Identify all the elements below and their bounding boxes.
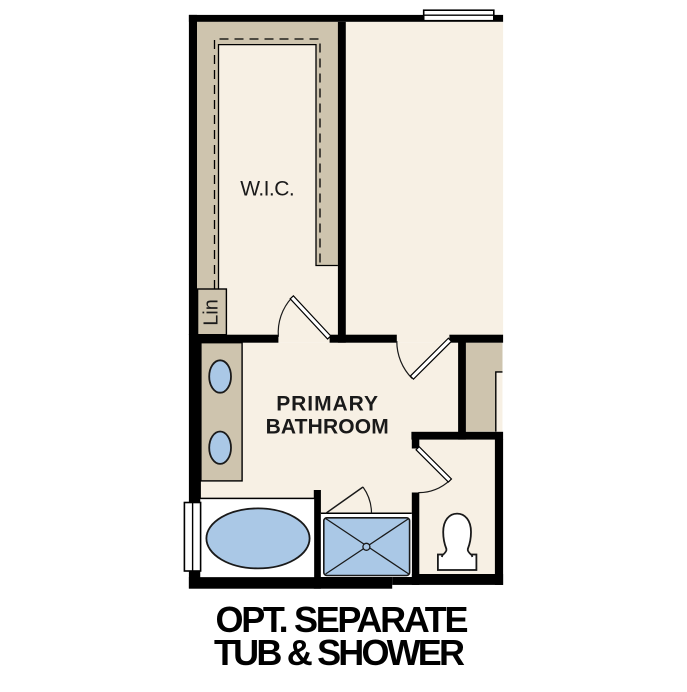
- svg-text:BATHROOM: BATHROOM: [266, 415, 389, 438]
- svg-text:TUB & SHOWER: TUB & SHOWER: [214, 632, 465, 673]
- svg-text:PRIMARY: PRIMARY: [276, 393, 378, 416]
- svg-text:W.I.C.: W.I.C.: [240, 178, 295, 201]
- svg-text:Lin: Lin: [199, 299, 222, 326]
